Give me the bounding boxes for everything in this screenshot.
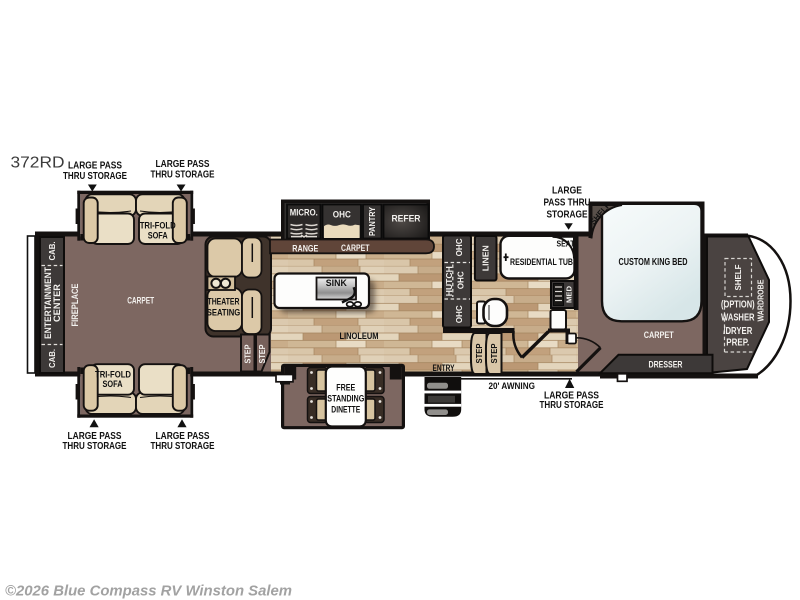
svg-text:THRU STORAGE: THRU STORAGE — [63, 441, 127, 452]
svg-text:RESIDENTIAL TUB: RESIDENTIAL TUB — [510, 257, 573, 267]
svg-text:CUSTOM KING BED: CUSTOM KING BED — [619, 257, 688, 268]
svg-text:THRU STORAGE: THRU STORAGE — [540, 400, 604, 411]
svg-text:REFER: REFER — [392, 213, 422, 223]
svg-text:THEATER: THEATER — [208, 297, 240, 307]
svg-text:TRI-FOLD: TRI-FOLD — [140, 221, 177, 231]
svg-text:CENTER: CENTER — [52, 284, 62, 322]
svg-text:20' AWNING: 20' AWNING — [488, 381, 535, 392]
svg-text:STEP: STEP — [243, 345, 252, 364]
svg-text:OHC: OHC — [457, 271, 466, 289]
svg-text:SOFA: SOFA — [103, 379, 123, 389]
svg-text:THRU STORAGE: THRU STORAGE — [151, 169, 215, 180]
svg-text:LARGE PASS: LARGE PASS — [68, 160, 122, 171]
svg-text:SEATING: SEATING — [207, 308, 241, 318]
svg-text:DINETTE: DINETTE — [331, 404, 360, 414]
svg-text:372RD: 372RD — [11, 154, 65, 171]
svg-text:RANGE: RANGE — [292, 243, 318, 253]
svg-text:STEP: STEP — [490, 344, 499, 364]
svg-text:LINEN: LINEN — [482, 245, 491, 271]
svg-text:STEP: STEP — [258, 345, 267, 364]
svg-text:SHELF: SHELF — [734, 265, 743, 291]
svg-text:PANTRY: PANTRY — [368, 207, 377, 236]
svg-text:PASS THRU: PASS THRU — [544, 197, 591, 208]
svg-text:DRESSER: DRESSER — [649, 360, 683, 370]
svg-text:PREP.: PREP. — [726, 337, 749, 349]
svg-text:LARGE: LARGE — [552, 186, 582, 197]
svg-text:TRI-FOLD: TRI-FOLD — [95, 369, 132, 379]
svg-text:LINOLEUM: LINOLEUM — [340, 331, 379, 341]
svg-text:WARDROBE: WARDROBE — [756, 279, 766, 321]
svg-text:MICRO.: MICRO. — [290, 207, 318, 217]
svg-text:LARGE PASS: LARGE PASS — [156, 159, 210, 170]
svg-text:ENTRY: ENTRY — [433, 363, 455, 373]
svg-text:OHC: OHC — [455, 238, 464, 256]
svg-text:CAB.: CAB. — [47, 349, 57, 368]
svg-text:(OPTION): (OPTION) — [721, 299, 755, 311]
svg-text:SOFA: SOFA — [148, 230, 168, 240]
svg-text:WASHER: WASHER — [721, 312, 755, 324]
svg-text:SEAT: SEAT — [557, 239, 575, 248]
svg-text:STEP: STEP — [475, 344, 484, 364]
svg-text:CARPET: CARPET — [644, 330, 674, 340]
svg-text:OHC: OHC — [455, 305, 464, 323]
svg-text:MED: MED — [565, 285, 574, 303]
svg-text:©2026 Blue Compass RV Winston: ©2026 Blue Compass RV Winston Salem — [5, 583, 292, 600]
svg-text:FREE: FREE — [336, 382, 355, 392]
svg-text:STANDING: STANDING — [327, 393, 364, 403]
svg-text:THRU STORAGE: THRU STORAGE — [151, 441, 215, 452]
svg-text:CARPET: CARPET — [127, 295, 154, 305]
svg-text:THRU STORAGE: THRU STORAGE — [63, 171, 127, 182]
svg-text:HUTCH: HUTCH — [445, 266, 454, 296]
svg-text:/DRYER: /DRYER — [723, 325, 752, 337]
svg-text:SINK: SINK — [326, 278, 348, 288]
svg-text:STORAGE: STORAGE — [547, 209, 588, 220]
svg-text:CARPET: CARPET — [341, 243, 370, 253]
svg-text:CAB.: CAB. — [47, 242, 57, 261]
svg-text:OHC: OHC — [333, 209, 352, 219]
svg-text:FIREPLACE: FIREPLACE — [70, 284, 80, 327]
